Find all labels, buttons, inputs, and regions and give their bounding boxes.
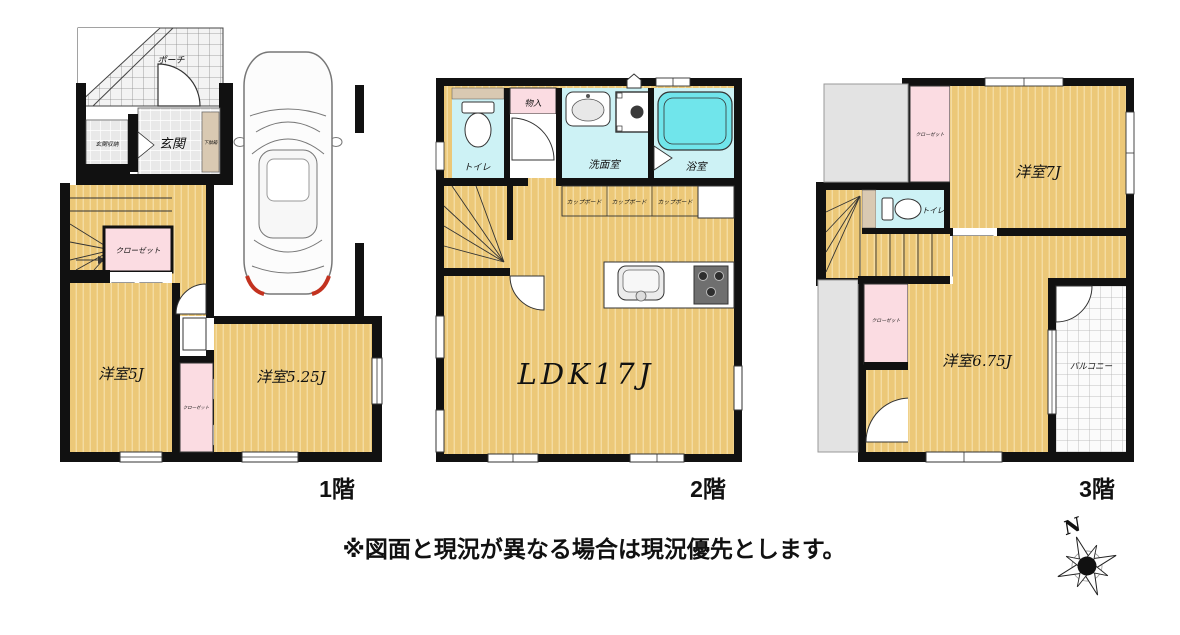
room-label-closet-north: クローゼット xyxy=(916,131,945,138)
kitchen-sink-basin xyxy=(623,270,659,292)
room-label-5-25j: 洋室5.25J xyxy=(256,368,326,386)
room-label-entrance: 玄関 xyxy=(159,137,187,152)
room-label-ldk: LDK17J xyxy=(517,357,655,391)
wall xyxy=(178,356,214,363)
label-shoe-cabinet: 下駄箱 xyxy=(204,140,219,146)
room-label-balcony: バルコニー xyxy=(1070,362,1113,372)
cupboard-row: カップボード カップボード カップボード xyxy=(562,186,734,218)
wall xyxy=(858,276,950,284)
label-cupboard-2: カップボード xyxy=(612,199,647,206)
balcony: バルコニー xyxy=(1048,278,1134,452)
wall xyxy=(219,83,233,185)
floorplan-sheet: ポーチ 下駄箱 玄関収納 玄関 クロ xyxy=(0,0,1180,635)
storage-hall-2f: 物入 xyxy=(510,88,562,184)
wall-outer-left xyxy=(60,183,70,462)
room-label-storage: 物入 xyxy=(524,98,542,109)
roof-area-north xyxy=(824,84,908,182)
washroom: 洗面室 xyxy=(562,88,658,184)
room-label-washroom: 洗面室 xyxy=(588,159,621,171)
kitchen-faucet xyxy=(636,291,646,301)
room-label-porch: ポーチ xyxy=(157,55,185,66)
wall xyxy=(76,174,233,185)
wall xyxy=(128,114,138,172)
disclaimer-note: ※図面と現況が異なる場合は現況優先とします。 xyxy=(342,536,845,562)
room-5-25j: 洋室5.25J xyxy=(214,316,382,462)
window xyxy=(734,366,742,410)
refrigerator-space xyxy=(698,186,734,218)
closet-opening xyxy=(110,272,172,283)
stair-hall-floor xyxy=(862,234,950,278)
label-cupboard-1: カップボード xyxy=(567,199,602,206)
car-icon xyxy=(234,52,342,294)
wall xyxy=(70,270,110,283)
window xyxy=(436,410,444,452)
toilet-bowl-icon xyxy=(895,199,921,219)
wall xyxy=(864,362,908,370)
room-label-7j: 洋室7J xyxy=(1015,163,1062,181)
closet-room xyxy=(864,284,908,364)
wall xyxy=(997,228,1126,236)
toilet-counter xyxy=(862,190,876,228)
window xyxy=(436,142,444,170)
bathtub-icon xyxy=(658,92,732,150)
room-label-toilet-2f: トイレ xyxy=(463,162,490,173)
wall xyxy=(444,268,510,276)
room-label-6-75j: 洋室6.75J xyxy=(942,352,1012,370)
room-label-5j: 洋室5J xyxy=(98,365,145,383)
floor-label-1f: 1階 xyxy=(319,476,355,502)
window xyxy=(436,316,444,358)
floor-plan-1f: ポーチ 下駄箱 玄関収納 玄関 クロ xyxy=(60,28,382,462)
toilet-tank-icon xyxy=(462,102,494,113)
wall xyxy=(214,316,372,324)
floor-label-3f: 3階 xyxy=(1079,476,1115,502)
wall xyxy=(858,228,950,234)
porch-area: ポーチ xyxy=(78,28,223,106)
washing-machine-drum xyxy=(631,106,644,119)
wall xyxy=(1048,278,1134,286)
stove-burner xyxy=(715,272,724,281)
stove-burner xyxy=(699,272,708,281)
stove-icon xyxy=(694,266,728,304)
wall xyxy=(648,88,654,184)
parking-wall xyxy=(355,243,364,318)
washer-corner xyxy=(617,93,622,98)
washer-corner xyxy=(617,126,622,131)
room-label-closet-hall: クローゼット xyxy=(116,246,161,255)
toilet-bowl-icon xyxy=(465,113,491,147)
wall xyxy=(507,186,513,240)
compass-icon: N xyxy=(1038,505,1128,608)
car-sunroof xyxy=(267,159,309,201)
wall-outer-bottom xyxy=(60,452,382,462)
floor-label-2f: 2階 xyxy=(690,476,726,502)
room-label-bathroom: 浴室 xyxy=(686,161,708,173)
wall xyxy=(504,88,510,184)
wall-wing-left xyxy=(816,182,826,286)
stove-burner xyxy=(707,288,716,297)
sink-faucet xyxy=(586,94,590,98)
open-door-leaf xyxy=(183,318,206,350)
sink-basin xyxy=(572,99,604,121)
room-label-closet-strip: クローゼット xyxy=(183,405,210,411)
wall-wing-top xyxy=(816,182,950,190)
wall xyxy=(944,186,950,236)
toilet-tank-icon xyxy=(882,198,893,220)
vent-icon xyxy=(627,74,641,88)
toilet-3f: トイレ xyxy=(858,186,950,236)
wall xyxy=(556,88,562,184)
parking-space xyxy=(234,52,364,318)
room-label-toilet-3f: トイレ xyxy=(922,206,945,215)
wall xyxy=(556,178,742,186)
wall xyxy=(206,185,214,318)
kitchen-island xyxy=(604,262,734,308)
compass-north-label: N xyxy=(1060,513,1085,540)
room-floor-upper xyxy=(953,236,1126,284)
room-floor xyxy=(950,86,1126,228)
room-floor xyxy=(214,324,372,452)
floor-plan-3f: クローゼット 洋室7J トイレ xyxy=(816,78,1134,462)
toilet-counter xyxy=(452,88,504,99)
parking-wall xyxy=(355,85,364,133)
label-entrance-storage: 玄関収納 xyxy=(95,141,119,148)
room-label-closet-west: クローゼット xyxy=(872,317,901,324)
label-cupboard-3: カップボード xyxy=(658,199,693,206)
room-5j: 洋室5J xyxy=(70,283,172,452)
wall xyxy=(444,178,528,186)
floor-plan-2f: トイレ 物入 洗面室 xyxy=(436,74,742,462)
compass-center xyxy=(1075,554,1099,578)
roof-area-west xyxy=(818,280,858,452)
stairs-floor xyxy=(444,186,507,270)
floorplan-drawing: ポーチ 下駄箱 玄関収納 玄関 クロ xyxy=(0,0,1180,635)
